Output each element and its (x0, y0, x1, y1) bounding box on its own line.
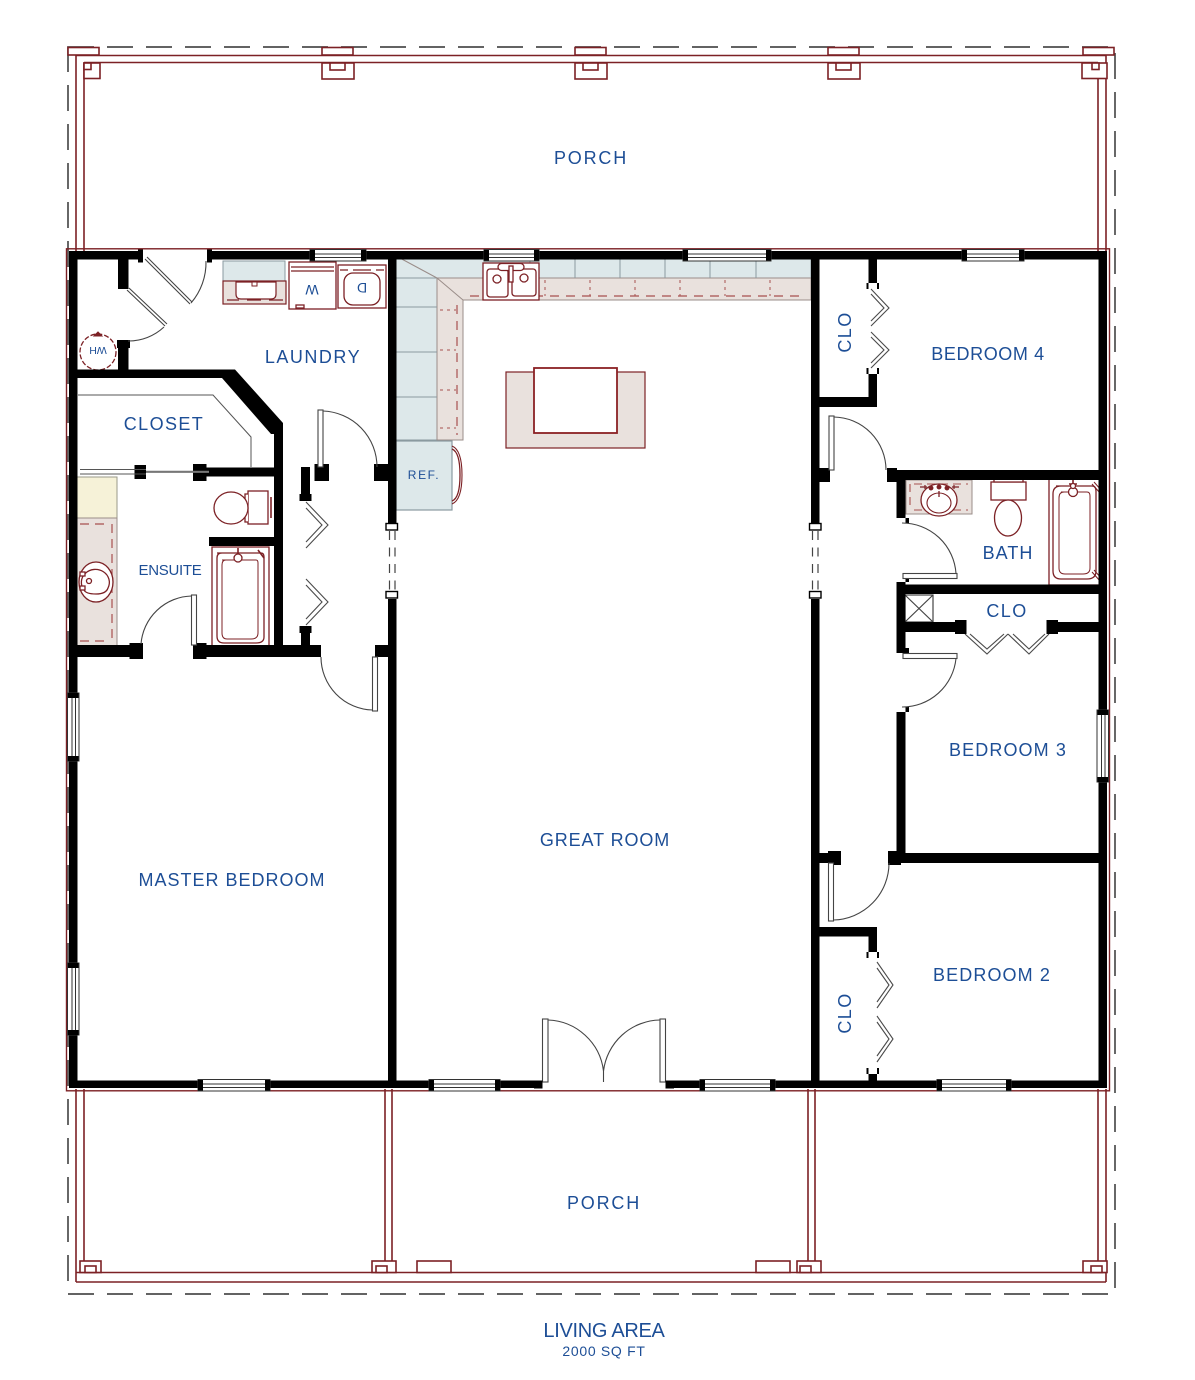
svg-text:LIVING AREA: LIVING AREA (543, 1320, 665, 1342)
svg-text:CLOSET: CLOSET (124, 414, 204, 434)
svg-text:PORCH: PORCH (554, 148, 628, 168)
svg-text:2000 SQ FT: 2000 SQ FT (562, 1343, 645, 1359)
svg-text:MASTER BEDROOM: MASTER BEDROOM (138, 870, 325, 890)
svg-text:D: D (357, 280, 367, 296)
svg-text:BEDROOM 4: BEDROOM 4 (931, 344, 1044, 364)
svg-text:CLO: CLO (986, 601, 1027, 621)
svg-text:BATH: BATH (983, 543, 1034, 563)
svg-text:GREAT ROOM: GREAT ROOM (540, 830, 670, 850)
svg-text:CLO: CLO (835, 311, 855, 352)
svg-text:PORCH: PORCH (567, 1193, 641, 1213)
svg-text:LAUNDRY: LAUNDRY (265, 347, 361, 367)
svg-text:WH: WH (89, 344, 107, 356)
svg-text:ENSUITE: ENSUITE (139, 562, 202, 579)
svg-text:CLO: CLO (835, 992, 855, 1033)
svg-text:BEDROOM 3: BEDROOM 3 (949, 740, 1067, 760)
svg-text:BEDROOM 2: BEDROOM 2 (933, 965, 1051, 985)
svg-text:REF.: REF. (408, 468, 440, 482)
svg-text:W: W (305, 282, 319, 298)
